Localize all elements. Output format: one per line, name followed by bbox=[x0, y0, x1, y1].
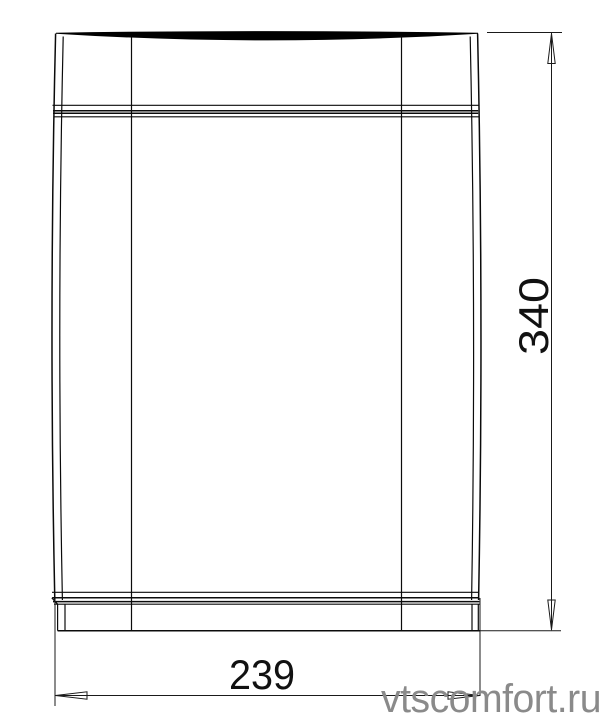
part-right-inner-edge bbox=[470, 37, 473, 601]
width-dimension-label: 239 bbox=[229, 651, 295, 698]
part-front-view bbox=[52, 32, 481, 631]
part-bottom-seam bbox=[52, 592, 480, 604]
height-dimension-label: 340 bbox=[510, 277, 557, 355]
drawing-page: 340 239 vtscomfort.ru bbox=[0, 0, 607, 719]
part-left-inner-edge bbox=[60, 37, 63, 601]
part-right-outer-edge bbox=[478, 34, 481, 601]
technical-drawing-canvas: 340 239 vtscomfort.ru bbox=[0, 0, 607, 719]
part-top-rim bbox=[56, 32, 478, 40]
height-dimension: 340 bbox=[480, 33, 562, 631]
part-top-seam bbox=[53, 105, 479, 117]
part-left-outer-edge bbox=[52, 34, 56, 601]
part-bottom-collar bbox=[52, 598, 480, 631]
watermark: vtscomfort.ru bbox=[381, 677, 601, 719]
